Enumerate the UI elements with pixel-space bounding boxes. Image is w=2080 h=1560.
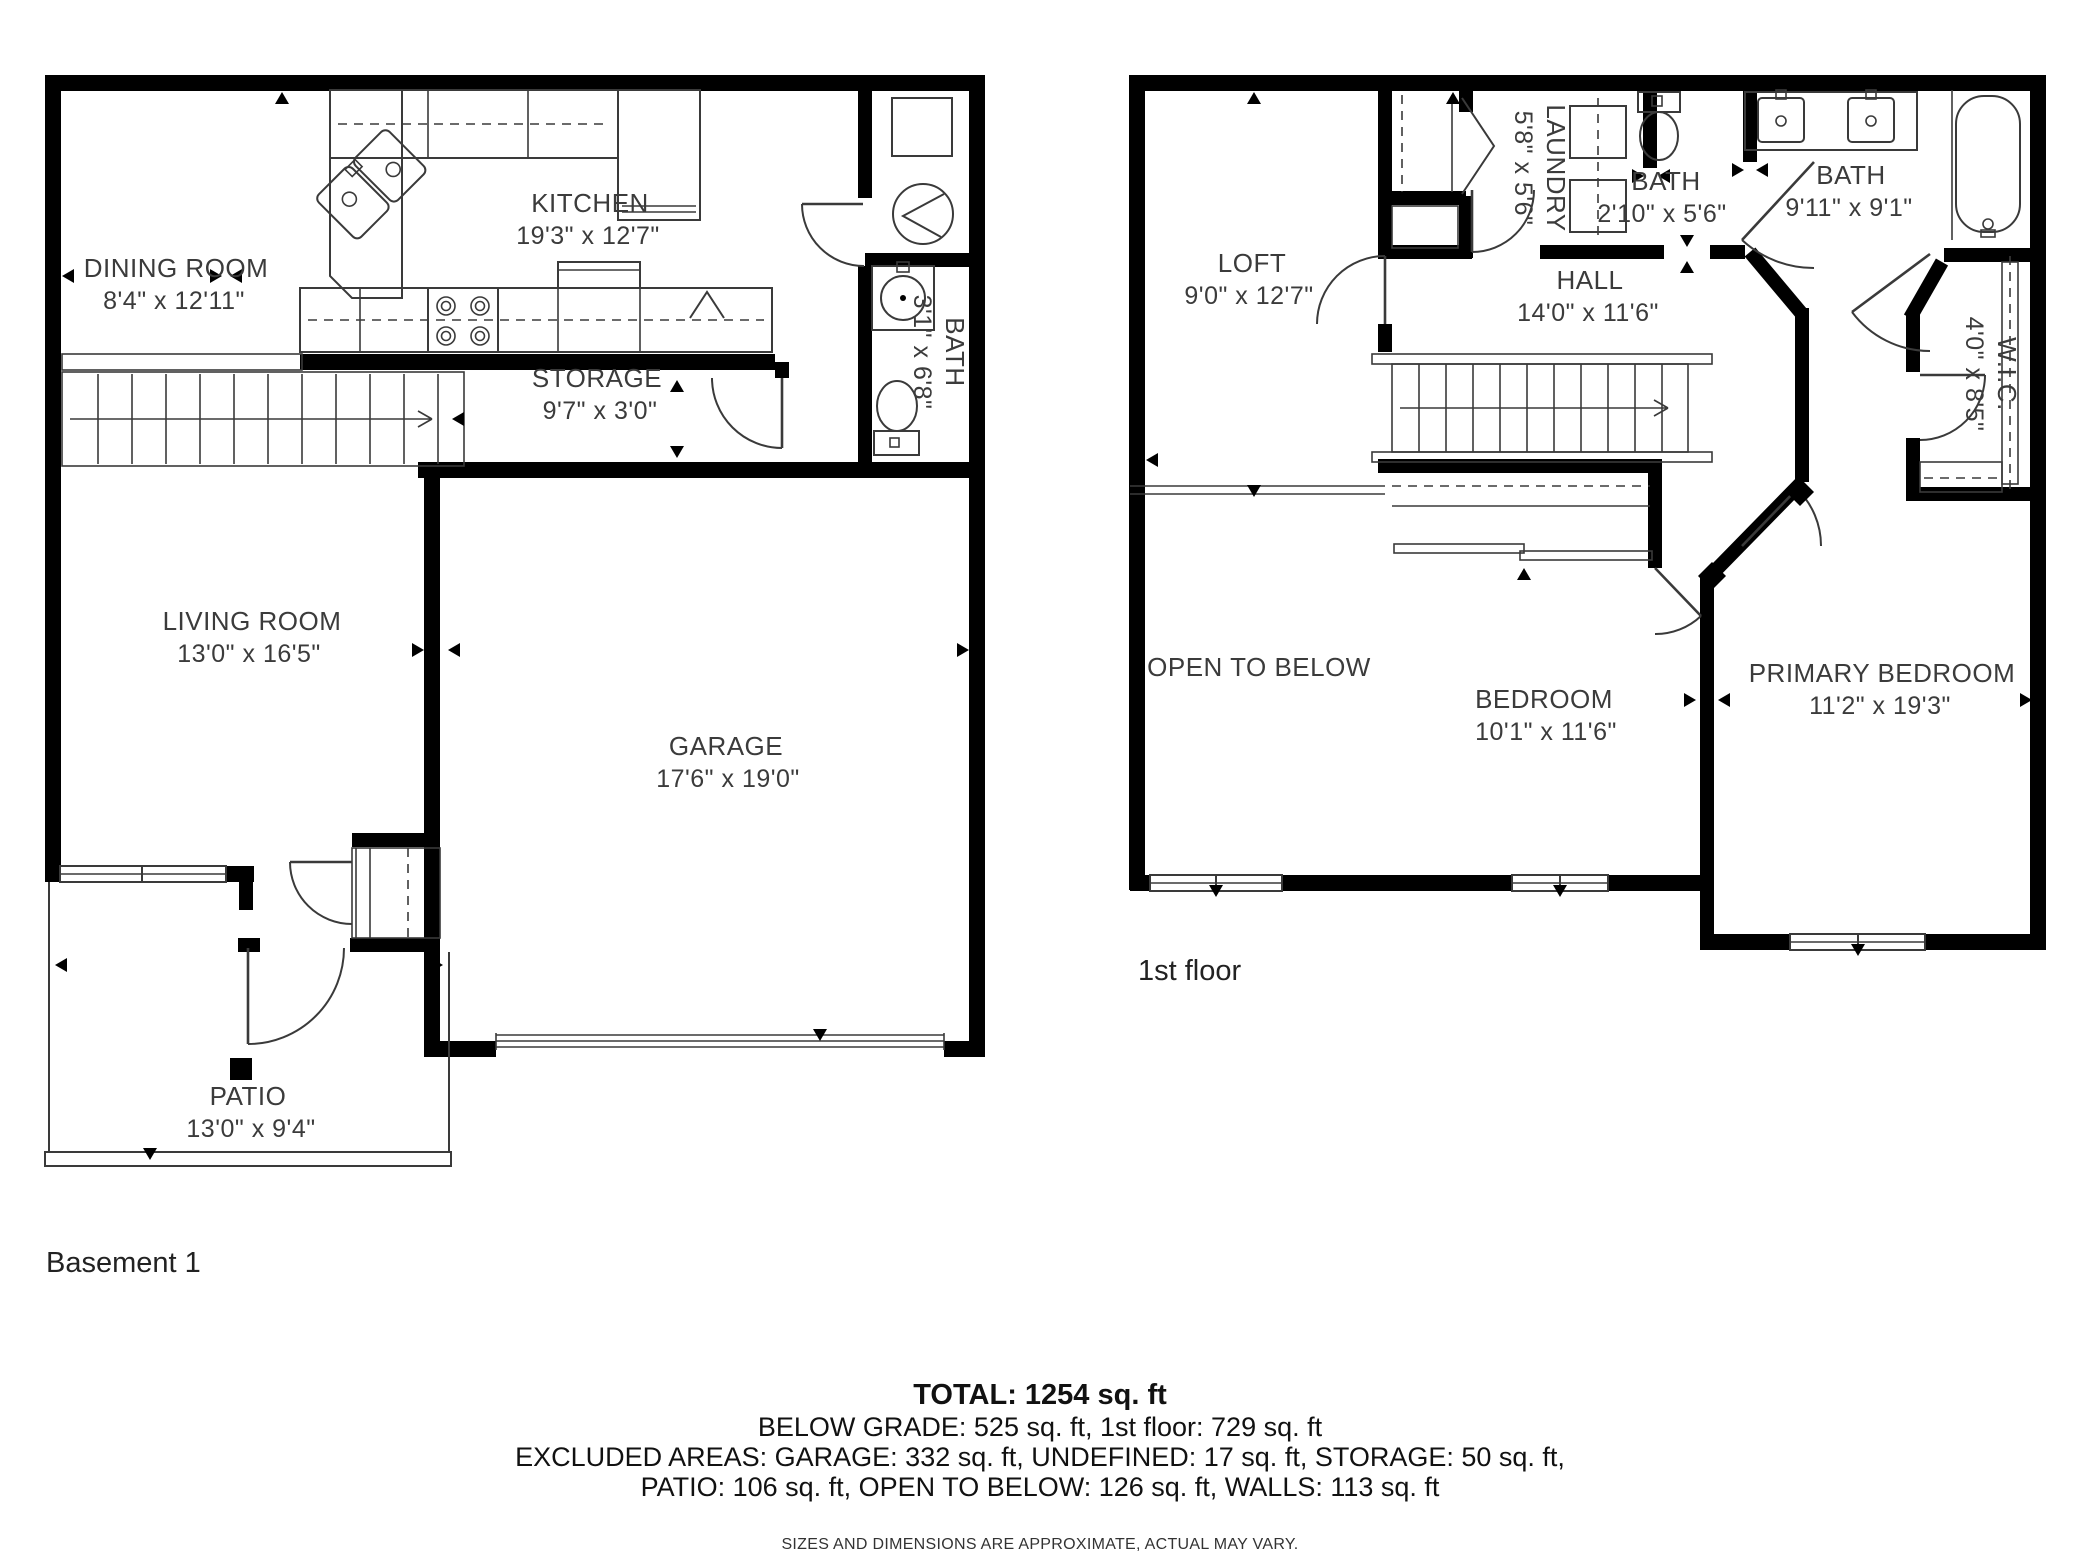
room-dims-hall: 14'0" x 11'6" [1517, 299, 1659, 327]
room-label-hall: HALL [1556, 265, 1623, 295]
room-label-loft: LOFT [1218, 248, 1286, 278]
room-label-dining: DINING ROOM [84, 253, 269, 283]
summary-disclaimer: SIZES AND DIMENSIONS ARE APPROXIMATE, AC… [781, 1536, 1298, 1553]
room-dims-living: 13'0" x 16'5" [177, 640, 321, 668]
room-dims-kitchen: 19'3" x 12'7" [516, 222, 660, 250]
summary-line3: PATIO: 106 sq. ft, OPEN TO BELOW: 126 sq… [641, 1472, 1440, 1502]
room-dims-patio: 13'0" x 9'4" [186, 1115, 315, 1143]
room-label-bedroom: BEDROOM [1475, 684, 1613, 714]
patio-post [230, 1058, 252, 1080]
room-dims-wic: 4'0" x 8'5" [1960, 317, 1988, 432]
room-dims-dining: 8'4" x 12'11" [103, 287, 245, 315]
room-label-open-below: OPEN TO BELOW [1147, 652, 1371, 682]
room-label-wic: W.I.C. [1992, 337, 2022, 411]
room-label-primary: PRIMARY BEDROOM [1749, 658, 2016, 688]
room-dims-loft: 9'0" x 12'7" [1184, 282, 1313, 310]
garage-door [496, 1033, 944, 1050]
room-label-garage: GARAGE [669, 731, 783, 761]
room-label-kitchen: KITCHEN [531, 188, 649, 218]
room-dims-storage: 9'7" x 3'0" [543, 397, 658, 425]
first-floor-label: 1st floor [1138, 955, 1241, 987]
summary-line1: BELOW GRADE: 525 sq. ft, 1st floor: 729 … [758, 1412, 1323, 1442]
room-dims-garage: 17'6" x 19'0" [656, 765, 800, 793]
room-label-living: LIVING ROOM [163, 606, 342, 636]
room-dims-bath-large: 9'11" x 9'1" [1785, 194, 1912, 222]
room-dims-bath-small: 2'10" x 5'6" [1597, 200, 1726, 228]
summary-total: TOTAL: 1254 sq. ft [913, 1379, 1167, 1411]
room-dims-basement-bath: 3'1" x 6'8" [908, 295, 936, 410]
basement-floor-label: Basement 1 [46, 1247, 201, 1279]
room-label-laundry: LAUNDRY [1541, 104, 1571, 231]
room-label-bath-large: BATH [1816, 160, 1885, 190]
room-dims-bedroom: 10'1" x 11'6" [1475, 718, 1617, 746]
room-label-storage: STORAGE [532, 363, 662, 393]
room-label-basement-bath: BATH [940, 317, 970, 386]
room-label-patio: PATIO [210, 1081, 287, 1111]
room-dims-primary: 11'2" x 19'3" [1809, 692, 1951, 720]
summary-line2: EXCLUDED AREAS: GARAGE: 332 sq. ft, UNDE… [515, 1442, 1565, 1472]
page-background [0, 0, 2080, 1560]
floorplan-canvas: DINING ROOM 8'4" x 12'11" KITCHEN 19'3" … [0, 0, 2080, 1560]
room-label-bath-small: BATH [1631, 166, 1700, 196]
room-dims-laundry: 5'8" x 5'6" [1509, 111, 1537, 226]
living-room-window [60, 866, 226, 882]
